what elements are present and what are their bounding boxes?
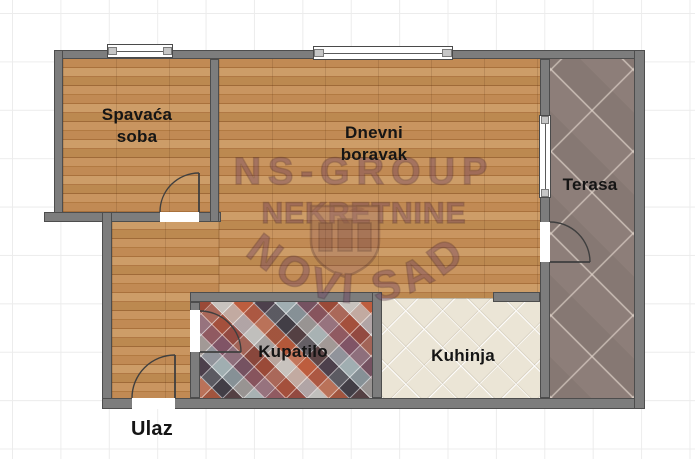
room-label-bathroom: Kupatilo [258, 341, 328, 363]
terrace-door-arc [550, 222, 590, 262]
entrance-door-arc [132, 355, 175, 398]
room-label-bedroom-line2: soba [102, 126, 172, 148]
room-label-living-line2: boravak [341, 144, 408, 166]
room-label-bedroom-line1: Spavaća [102, 104, 172, 126]
floor-plan-canvas: NS-GROUP NEKRETNINE NOVI SAD [0, 0, 695, 459]
entrance-label: Ulaz [131, 416, 173, 442]
room-label-living-room: Dnevni boravak [341, 122, 408, 166]
room-label-living-line1: Dnevni [341, 122, 408, 144]
bathroom-door-arc [200, 311, 241, 352]
bedroom-door-arc [160, 173, 199, 212]
watermark: NS-GROUP NEKRETNINE NOVI SAD [234, 151, 495, 312]
room-label-kitchen: Kuhinja [431, 345, 495, 367]
room-label-bedroom: Spavaća soba [102, 104, 172, 148]
overlay-graphics: NS-GROUP NEKRETNINE NOVI SAD [0, 0, 695, 459]
room-label-terrace: Terasa [563, 174, 618, 196]
